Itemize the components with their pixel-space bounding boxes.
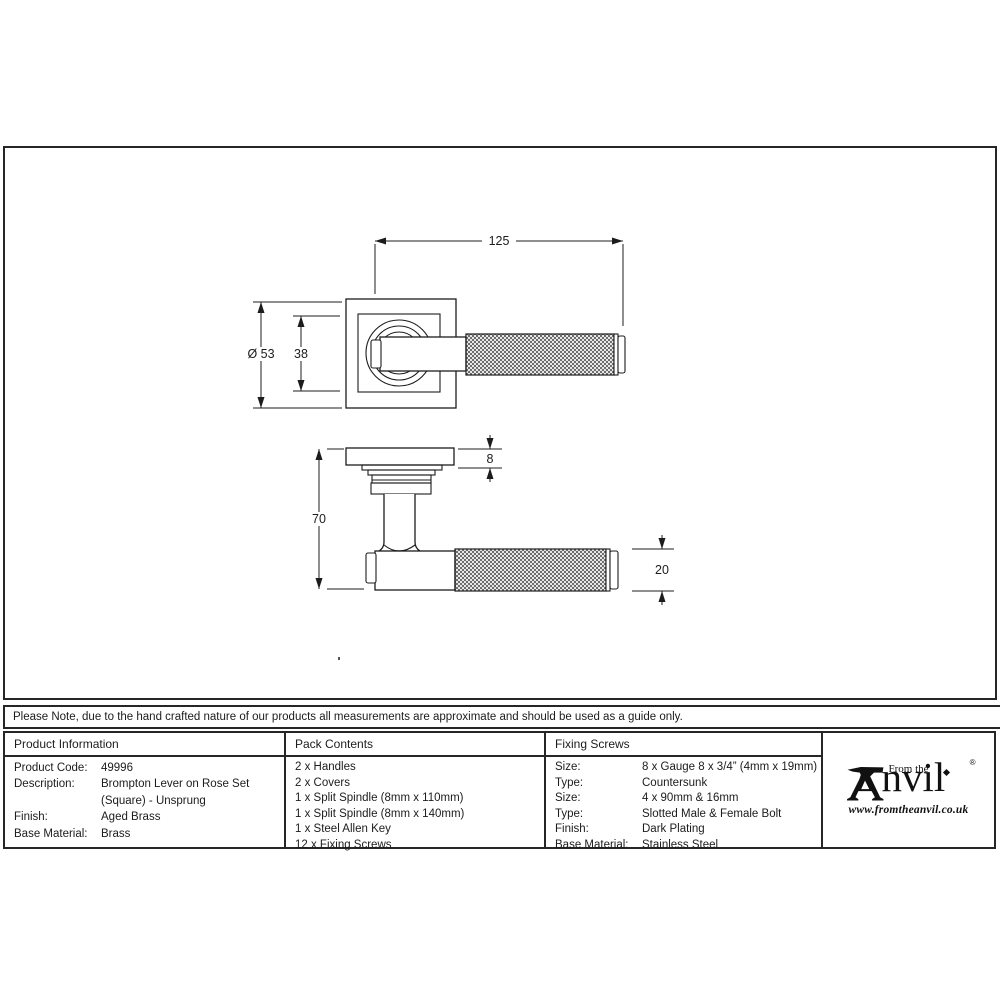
rose-collar-a-side — [372, 475, 431, 483]
table-row: Base Material: Stainless Steel — [555, 838, 821, 854]
spec-table: Product Information Product Code: 49996 … — [3, 731, 996, 849]
pack-contents-body: 2 x Handles 2 x Covers 1 x Split Spindle… — [286, 757, 544, 854]
row-value: 8 x Gauge 8 x 3/4” (4mm x 19mm) — [642, 760, 817, 776]
list-item: 1 x Split Spindle (8mm x 140mm) — [295, 807, 544, 823]
list-item: 1 x Steel Allen Key — [295, 822, 544, 838]
list-item: 1 x Split Spindle (8mm x 110mm) — [295, 791, 544, 807]
row-value: 4 x 90mm & 16mm — [642, 791, 739, 807]
grip-end-cap-side — [610, 551, 618, 589]
rose-disc-side — [346, 448, 454, 465]
list-item: 2 x Covers — [295, 776, 544, 792]
pack-contents-header: Pack Contents — [286, 733, 544, 757]
front-view — [346, 299, 625, 408]
row-value: Brass — [101, 826, 269, 842]
knurled-grip-side — [455, 549, 606, 591]
fixing-screws-cell: Fixing Screws Size: 8 x Gauge 8 x 3/4” (… — [544, 731, 823, 849]
rose-collar-b-side — [371, 483, 431, 494]
row-label: Size: — [555, 760, 642, 776]
table-row: Base Material: Brass — [14, 826, 284, 842]
grip-end-cap-front — [618, 336, 625, 373]
lever-neck-front — [380, 337, 466, 371]
row-label: Type: — [555, 776, 642, 792]
row-label: Type: — [555, 807, 642, 823]
scan-speck — [338, 657, 340, 660]
brand-logo-cell: From the nvil ® www.fromtheanvil.co.uk — [821, 731, 996, 849]
fixing-screws-body: Size: 8 x Gauge 8 x 3/4” (4mm x 19mm) Ty… — [546, 757, 821, 854]
table-row: Product Code: 49996 — [14, 760, 284, 776]
dim-inner-rose-label: 38 — [294, 347, 308, 361]
row-value: Brompton Lever on Rose Set (Square) - Un… — [101, 776, 269, 809]
measurement-note-bar: Please Note, due to the hand crafted nat… — [3, 705, 1000, 729]
table-row: Size: 4 x 90mm & 16mm — [555, 791, 821, 807]
side-view — [346, 448, 618, 591]
row-value: Slotted Male & Female Bolt — [642, 807, 781, 823]
dim-8 — [458, 435, 502, 482]
from-the-anvil-logo: From the nvil ® www.fromtheanvil.co.uk — [845, 761, 973, 819]
list-item: 12 x Fixing Screws — [295, 838, 544, 854]
row-label: Base Material: — [555, 838, 642, 854]
knurled-grip-front — [466, 334, 614, 375]
spec-sheet-page: { "drawing": { "dim_overall_length": "12… — [0, 0, 1000, 1000]
lever-cap-front — [371, 340, 381, 368]
row-label: Base Material: — [14, 826, 101, 842]
table-row: Type: Countersunk — [555, 776, 821, 792]
table-row: Description: Brompton Lever on Rose Set … — [14, 776, 284, 809]
table-row: Finish: Dark Plating — [555, 822, 821, 838]
grip-end-ring-side — [606, 549, 610, 591]
lever-body-side — [375, 551, 455, 590]
dim-projection-label: 70 — [312, 512, 326, 526]
row-value: Countersunk — [642, 776, 707, 792]
dim-overall-length-label: 125 — [489, 234, 510, 248]
row-value: Dark Plating — [642, 822, 705, 838]
dim-125 — [375, 241, 623, 326]
table-row: Size: 8 x Gauge 8 x 3/4” (4mm x 19mm) — [555, 760, 821, 776]
logo-website-url: www.fromtheanvil.co.uk — [842, 804, 976, 816]
neck-mask — [379, 494, 420, 550]
row-label: Product Code: — [14, 760, 101, 776]
row-value: Stainless Steel — [642, 838, 718, 854]
list-item: 2 x Handles — [295, 760, 544, 776]
row-label: Finish: — [14, 809, 101, 825]
row-label: Size: — [555, 791, 642, 807]
registered-trademark-symbol: ® — [970, 758, 976, 767]
lever-cap-side — [366, 553, 376, 583]
pack-contents-cell: Pack Contents 2 x Handles 2 x Covers 1 x… — [284, 731, 546, 849]
product-information-cell: Product Information Product Code: 49996 … — [3, 731, 286, 849]
rose-step1-side — [362, 465, 442, 470]
row-value: Aged Brass — [101, 809, 269, 825]
row-value: 49996 — [101, 760, 269, 776]
dim-rose-thickness-label: 8 — [487, 452, 494, 466]
rose-step2-side — [368, 470, 435, 475]
table-row: Finish: Aged Brass — [14, 809, 284, 825]
table-row: Type: Slotted Male & Female Bolt — [555, 807, 821, 823]
product-information-body: Product Code: 49996 Description: Brompto… — [5, 757, 284, 842]
dim-rose-size-label: Ø 53 — [247, 347, 274, 361]
dim-lever-diameter-label: 20 — [655, 563, 669, 577]
measurement-note-text: Please Note, due to the hand crafted nat… — [13, 711, 683, 723]
logo-wordmark-text: nvil — [882, 758, 946, 796]
lever-drawing: 125 Ø 53 38 — [5, 148, 995, 698]
technical-drawing-panel: 125 Ø 53 38 — [3, 146, 997, 700]
fixing-screws-header: Fixing Screws — [546, 733, 821, 757]
anvil-icon — [845, 766, 885, 801]
row-label: Finish: — [555, 822, 642, 838]
row-label: Description: — [14, 776, 101, 809]
grip-end-ring-front — [614, 334, 618, 375]
product-information-header: Product Information — [5, 733, 284, 757]
